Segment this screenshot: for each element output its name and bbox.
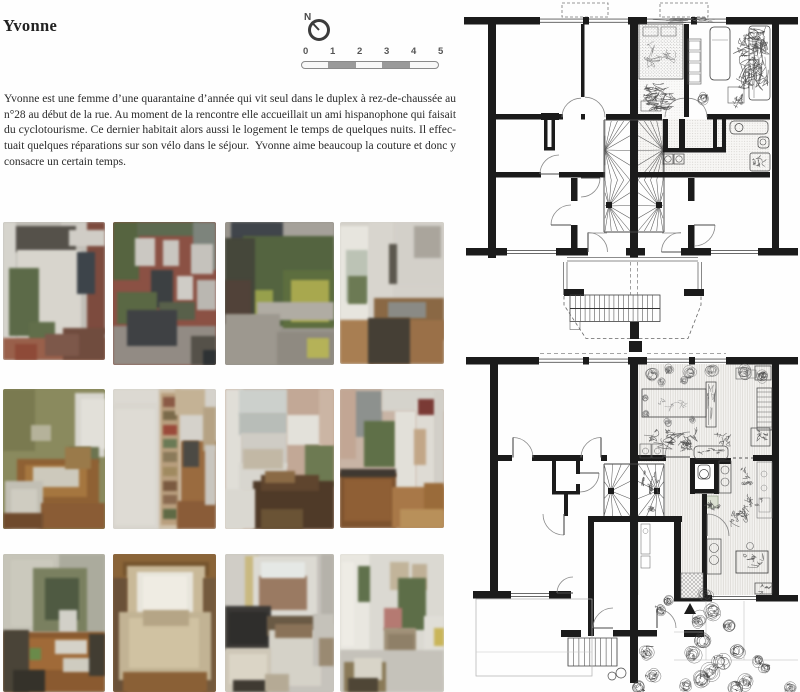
svg-text:N: N	[304, 12, 311, 23]
